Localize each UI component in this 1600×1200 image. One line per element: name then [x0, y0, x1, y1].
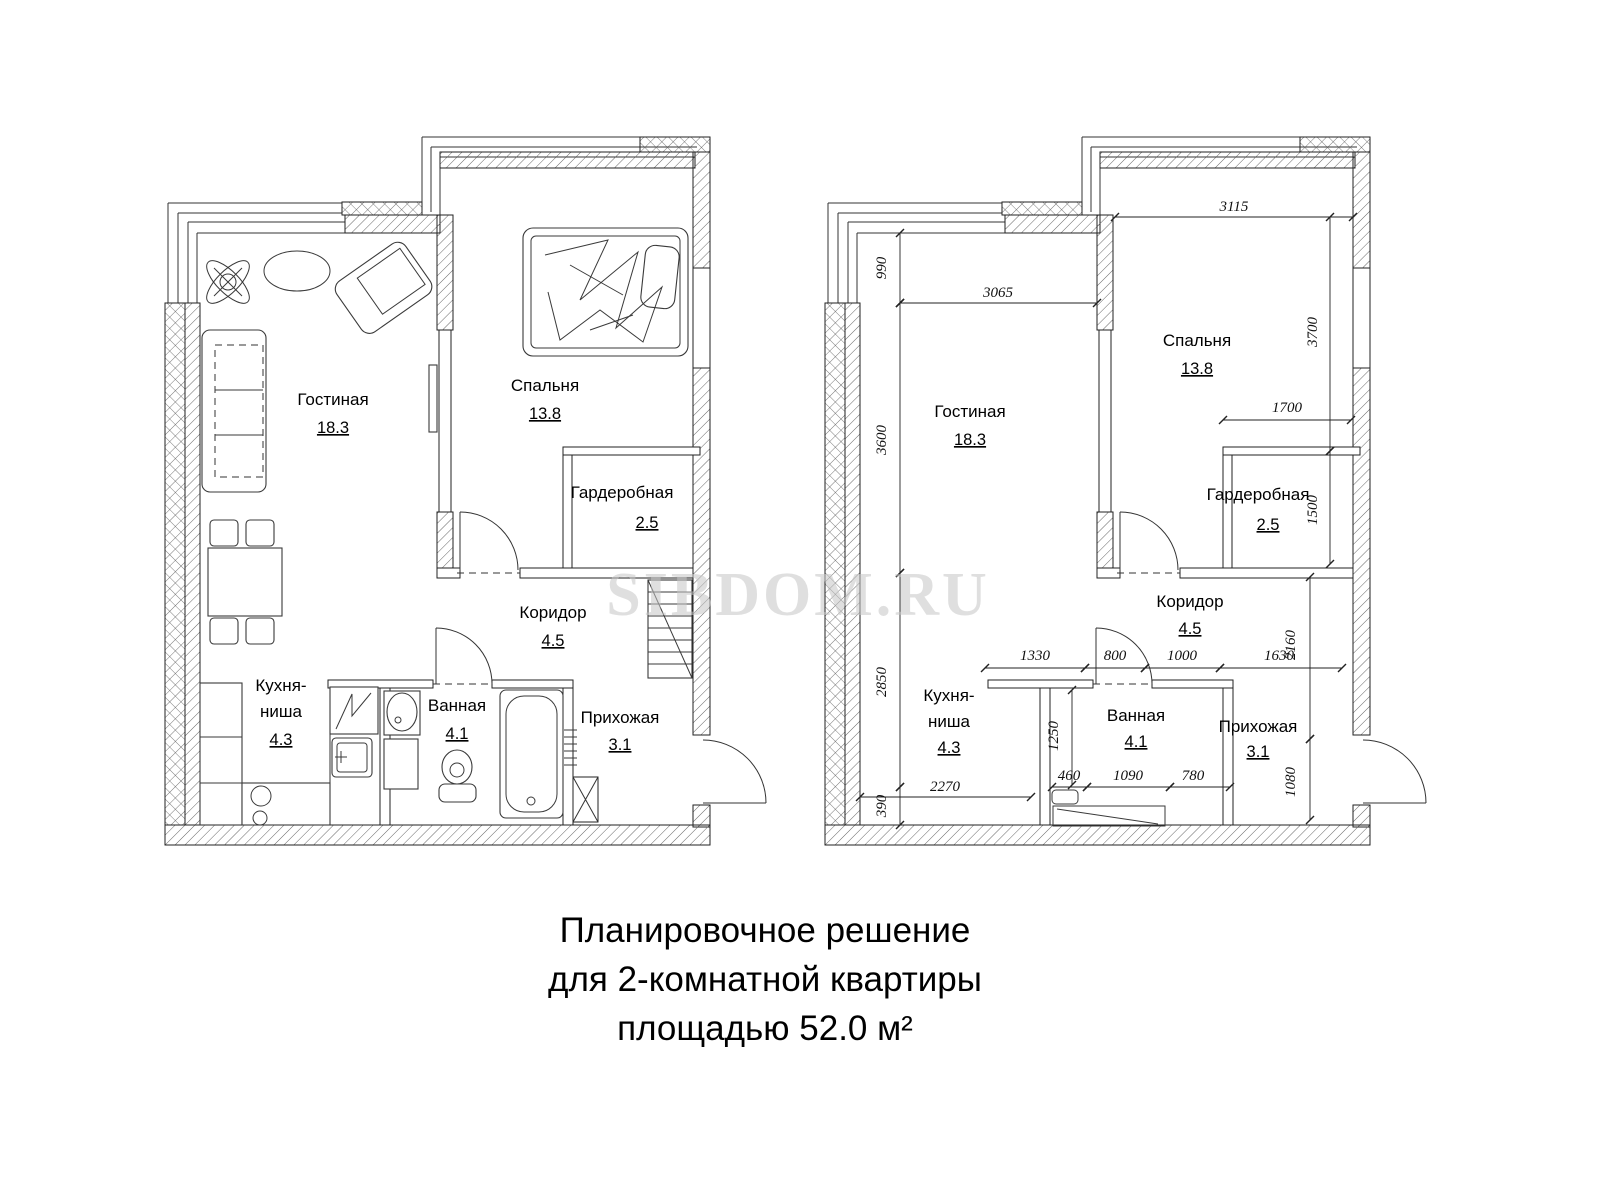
room-labels-right: Гостиная 18.3 Спальня 13.8 Гардеробная 2… — [923, 331, 1309, 761]
dim-bath-2: 1090 — [1113, 768, 1144, 784]
room-label-wardrobe: Гардеробная — [571, 483, 674, 502]
sofa-icon — [202, 330, 266, 492]
dim-bedroom-width: 3115 — [1219, 199, 1249, 215]
coffee-table-icon — [264, 251, 330, 291]
room-area-wardrobe: 2.5 — [1257, 516, 1280, 534]
dim-corridor-1: 1330 — [1020, 648, 1051, 664]
dim-corridor-depth: 2160 — [1283, 630, 1299, 661]
toilet-icon — [439, 750, 476, 802]
floorplan-sheet: Гостиная 18.3 Спальня 13.8 Гардеробная 2… — [0, 0, 1600, 1200]
room-label-bedroom: Спальня — [1163, 331, 1231, 350]
caption-line-3: площадью 52.0 м² — [400, 1004, 1130, 1053]
dim-corridor-2: 1000 — [1167, 648, 1198, 664]
dim-bath-3: 780 — [1182, 768, 1205, 784]
dim-living-depth: 3600 — [874, 425, 890, 457]
dim-wardrobe-width: 1700 — [1272, 400, 1303, 416]
watermark: SIBDOM.RU — [578, 560, 1018, 631]
washbasin-icon — [384, 691, 420, 789]
room-label-corridor: Коридор — [1156, 592, 1223, 611]
room-area-bathroom: 4.1 — [446, 725, 469, 743]
dim-kitchen-depth: 2850 — [874, 667, 890, 698]
partial-fixtures — [1052, 790, 1165, 826]
furnished-plan: Гостиная 18.3 Спальня 13.8 Гардеробная 2… — [165, 137, 766, 845]
duct-shaft-icon — [573, 777, 598, 822]
plan-caption: Планировочное решение для 2-комнатной кв… — [400, 906, 1130, 1053]
dim-loggia-depth: 990 — [874, 256, 890, 279]
room-label-bedroom: Спальня — [511, 376, 579, 395]
room-label-kitchen-1: Кухня- — [255, 676, 306, 695]
dim-bath-depth: 1250 — [1046, 721, 1062, 752]
room-area-hall: 3.1 — [609, 736, 632, 754]
room-area-living: 18.3 — [954, 431, 986, 449]
room-label-kitchen-1: Кухня- — [923, 686, 974, 705]
room-area-corridor: 4.5 — [542, 632, 565, 650]
room-label-kitchen-2: ниша — [928, 712, 971, 731]
bed-icon — [523, 228, 688, 356]
room-label-living: Гостиная — [934, 402, 1005, 421]
dim-living-width: 3065 — [982, 285, 1014, 301]
room-label-kitchen-2: ниша — [260, 702, 303, 721]
room-area-kitchen: 4.3 — [270, 731, 293, 749]
dim-bedroom-depth: 3700 — [1305, 317, 1321, 349]
room-label-hall: Прихожая — [581, 708, 660, 727]
plant-icon — [200, 254, 255, 309]
caption-line-1: Планировочное решение — [400, 906, 1130, 955]
room-area-kitchen: 4.3 — [938, 739, 961, 757]
room-label-living: Гостиная — [297, 390, 368, 409]
room-label-bathroom: Ванная — [428, 696, 486, 715]
dining-set-icon — [208, 520, 282, 644]
radiator-icon — [429, 365, 437, 432]
room-area-corridor: 4.5 — [1179, 620, 1202, 638]
dim-kitchen-width: 2270 — [930, 779, 961, 795]
bathtub-icon — [500, 690, 563, 818]
room-label-wardrobe: Гардеробная — [1207, 485, 1310, 504]
room-area-hall: 3.1 — [1247, 743, 1270, 761]
room-label-hall: Прихожая — [1219, 717, 1298, 736]
room-area-bedroom: 13.8 — [1181, 360, 1213, 378]
armchair-icon — [331, 238, 435, 337]
room-label-corridor: Коридор — [519, 603, 586, 622]
room-area-living: 18.3 — [317, 419, 349, 437]
caption-line-2: для 2-комнатной квартиры — [400, 955, 1130, 1004]
dim-bath-1: 460 — [1058, 768, 1081, 784]
room-label-bathroom: Ванная — [1107, 706, 1165, 725]
dim-corridor-door: 800 — [1104, 648, 1127, 664]
dim-bottom-offset: 390 — [874, 794, 890, 818]
dim-entry-offset: 1080 — [1283, 767, 1299, 798]
dimensioned-plan: 3115 990 3065 3700 3600 1700 1500 2850 1… — [825, 137, 1426, 845]
room-area-bedroom: 13.8 — [529, 405, 561, 423]
room-area-wardrobe: 2.5 — [636, 514, 659, 532]
room-area-bathroom: 4.1 — [1125, 733, 1148, 751]
